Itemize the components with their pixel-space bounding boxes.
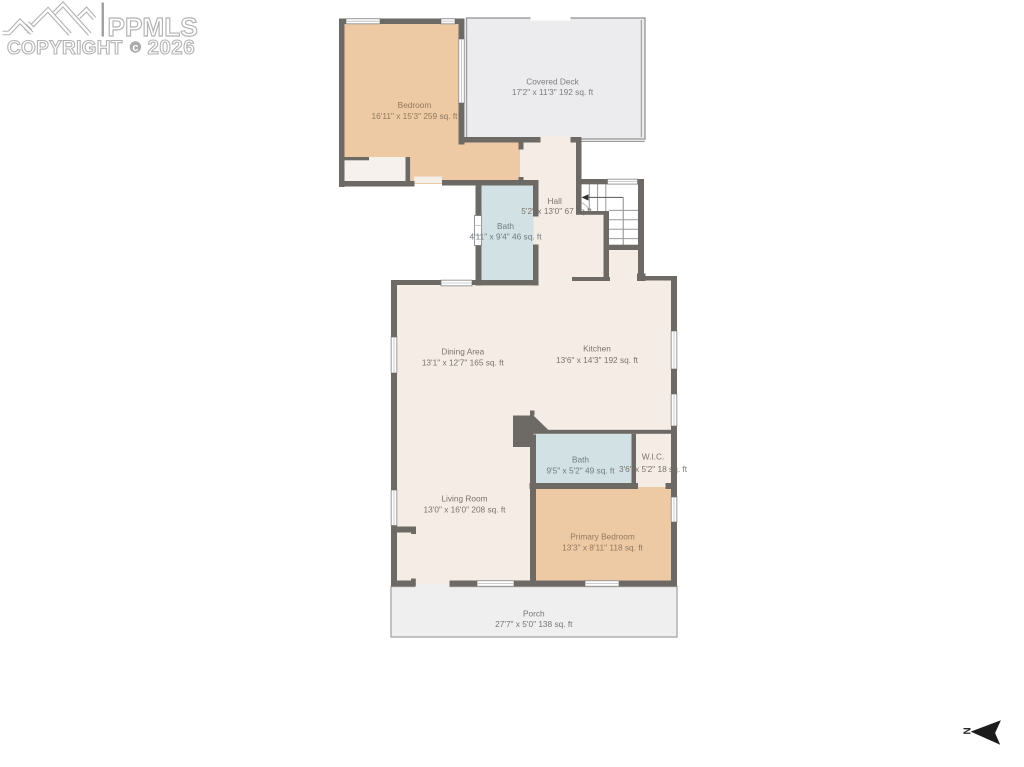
- svg-text:Bath: Bath: [572, 455, 589, 465]
- svg-text:W.I.C.: W.I.C.: [642, 452, 665, 462]
- svg-text:13'6" x 14'3" 192 sq. ft: 13'6" x 14'3" 192 sq. ft: [556, 355, 639, 365]
- svg-text:17'2" x 11'3" 192 sq. ft: 17'2" x 11'3" 192 sq. ft: [512, 87, 594, 97]
- svg-text:13'3" x 8'11" 118 sq. ft: 13'3" x 8'11" 118 sq. ft: [562, 543, 643, 553]
- svg-text:Porch: Porch: [523, 609, 545, 619]
- svg-text:9'5" x 5'2" 49 sq. ft: 9'5" x 5'2" 49 sq. ft: [546, 466, 615, 476]
- svg-text:COPYRIGHT: COPYRIGHT: [7, 38, 123, 59]
- svg-text:Living Room: Living Room: [441, 494, 487, 504]
- svg-text:Kitchen: Kitchen: [583, 344, 611, 354]
- svg-text:2026: 2026: [148, 36, 196, 59]
- svg-text:Bath: Bath: [497, 221, 514, 231]
- svg-text:Bedroom: Bedroom: [398, 100, 432, 110]
- svg-text:Dining Area: Dining Area: [441, 347, 484, 357]
- svg-text:13'1" x 12'7" 165 sq. ft: 13'1" x 12'7" 165 sq. ft: [422, 358, 505, 368]
- svg-text:N: N: [961, 727, 972, 734]
- svg-text:27'7" x 5'0" 138 sq. ft: 27'7" x 5'0" 138 sq. ft: [495, 619, 573, 629]
- svg-text:Covered Deck: Covered Deck: [526, 77, 579, 87]
- svg-text:16'11" x 15'3" 259 sq. ft: 16'11" x 15'3" 259 sq. ft: [372, 111, 459, 121]
- svg-text:Primary Bedroom: Primary Bedroom: [570, 532, 635, 542]
- svg-text:c: c: [132, 42, 138, 54]
- svg-text:Hall: Hall: [548, 196, 562, 206]
- svg-text:3'6" x 5'2" 18 sq. ft: 3'6" x 5'2" 18 sq. ft: [619, 464, 688, 474]
- svg-text:13'0" x 16'0" 208 sq. ft: 13'0" x 16'0" 208 sq. ft: [424, 505, 507, 515]
- svg-text:4'11" x 9'4" 46 sq. ft: 4'11" x 9'4" 46 sq. ft: [469, 232, 542, 242]
